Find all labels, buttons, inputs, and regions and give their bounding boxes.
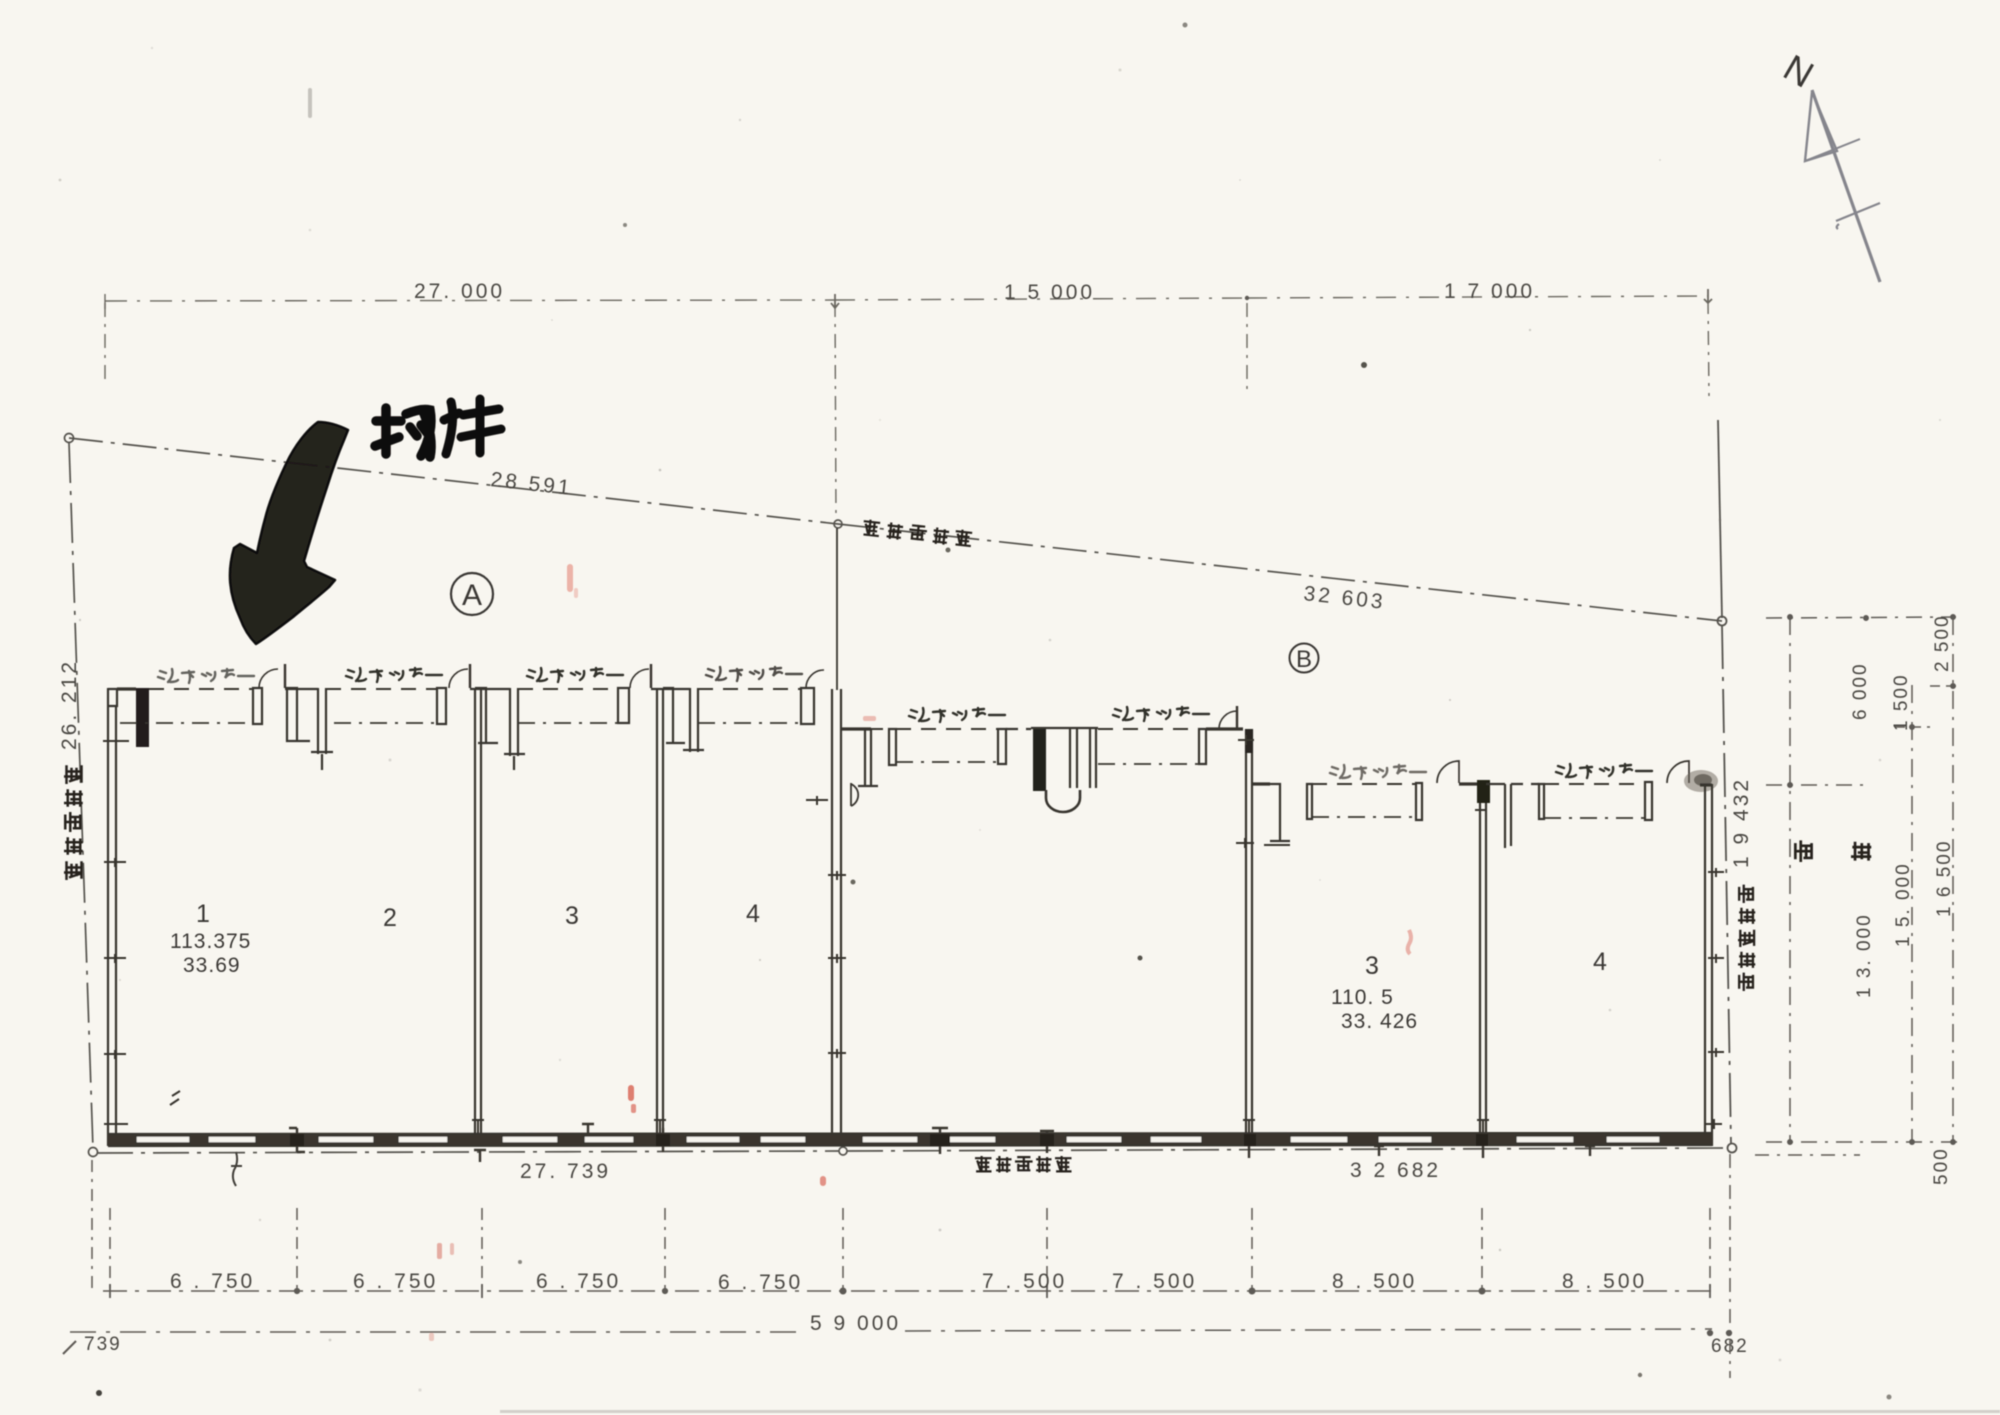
svg-text:2: 2 xyxy=(383,904,397,932)
svg-text:6 . 750: 6 . 750 xyxy=(353,1270,438,1293)
svg-text:33.69: 33.69 xyxy=(183,954,241,977)
svg-text:6 . 750: 6 . 750 xyxy=(170,1270,255,1293)
svg-text:1 9 432: 1 9 432 xyxy=(1730,777,1753,868)
svg-text:7 . 500: 7 . 500 xyxy=(982,1270,1067,1293)
svg-text:4: 4 xyxy=(746,900,760,928)
svg-text:1 7 000: 1 7 000 xyxy=(1444,280,1535,303)
svg-text:1 6 500: 1 6 500 xyxy=(1934,840,1955,917)
svg-text:26. 212: 26. 212 xyxy=(58,659,81,750)
svg-text:27. 000: 27. 000 xyxy=(414,280,505,303)
svg-text:B: B xyxy=(1296,646,1312,673)
svg-text:500: 500 xyxy=(1931,1147,1952,1185)
svg-text:2 500: 2 500 xyxy=(1932,614,1953,672)
svg-text:5 9 000: 5 9 000 xyxy=(810,1312,901,1335)
svg-text:27. 739: 27. 739 xyxy=(520,1160,611,1183)
svg-text:8 . 500: 8 . 500 xyxy=(1562,1270,1647,1293)
svg-text:6 . 750: 6 . 750 xyxy=(536,1270,621,1293)
svg-text:110. 5: 110. 5 xyxy=(1331,986,1394,1009)
svg-text:1 500: 1 500 xyxy=(1891,673,1912,731)
svg-text:8 . 500: 8 . 500 xyxy=(1332,1270,1417,1293)
svg-text:6 000: 6 000 xyxy=(1850,662,1871,720)
svg-text:A: A xyxy=(462,579,482,612)
svg-text:3: 3 xyxy=(565,902,579,930)
svg-text:113.375: 113.375 xyxy=(170,930,251,953)
svg-text:3 2 682: 3 2 682 xyxy=(1350,1159,1441,1182)
svg-text:1: 1 xyxy=(196,900,210,928)
svg-text:1 5. 000: 1 5. 000 xyxy=(1893,862,1914,947)
svg-text:1 3. 000: 1 3. 000 xyxy=(1854,913,1875,998)
svg-text:33. 426: 33. 426 xyxy=(1341,1010,1418,1033)
svg-text:6 . 750: 6 . 750 xyxy=(718,1271,803,1294)
svg-text:739: 739 xyxy=(84,1334,122,1355)
svg-text:3: 3 xyxy=(1365,952,1379,980)
svg-text:4: 4 xyxy=(1593,948,1607,976)
svg-text:7 . 500: 7 . 500 xyxy=(1112,1270,1197,1293)
svg-text:1 5 000: 1 5 000 xyxy=(1004,281,1095,304)
